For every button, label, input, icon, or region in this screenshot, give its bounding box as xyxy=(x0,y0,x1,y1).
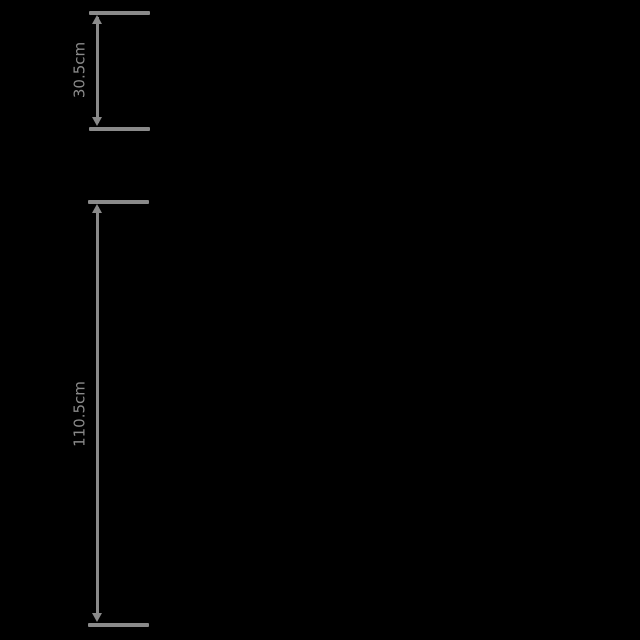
extension-line xyxy=(88,623,149,627)
arrow-down-icon xyxy=(92,613,102,622)
dimension-line xyxy=(96,17,99,123)
dimension-label: 110.5cm xyxy=(73,381,88,447)
extension-line xyxy=(89,127,150,131)
arrow-down-icon xyxy=(92,117,102,126)
dimension-label: 30.5cm xyxy=(73,42,88,98)
dimension-line xyxy=(96,207,99,615)
dimension-diagram: 30.5cm 110.5cm xyxy=(0,0,640,640)
